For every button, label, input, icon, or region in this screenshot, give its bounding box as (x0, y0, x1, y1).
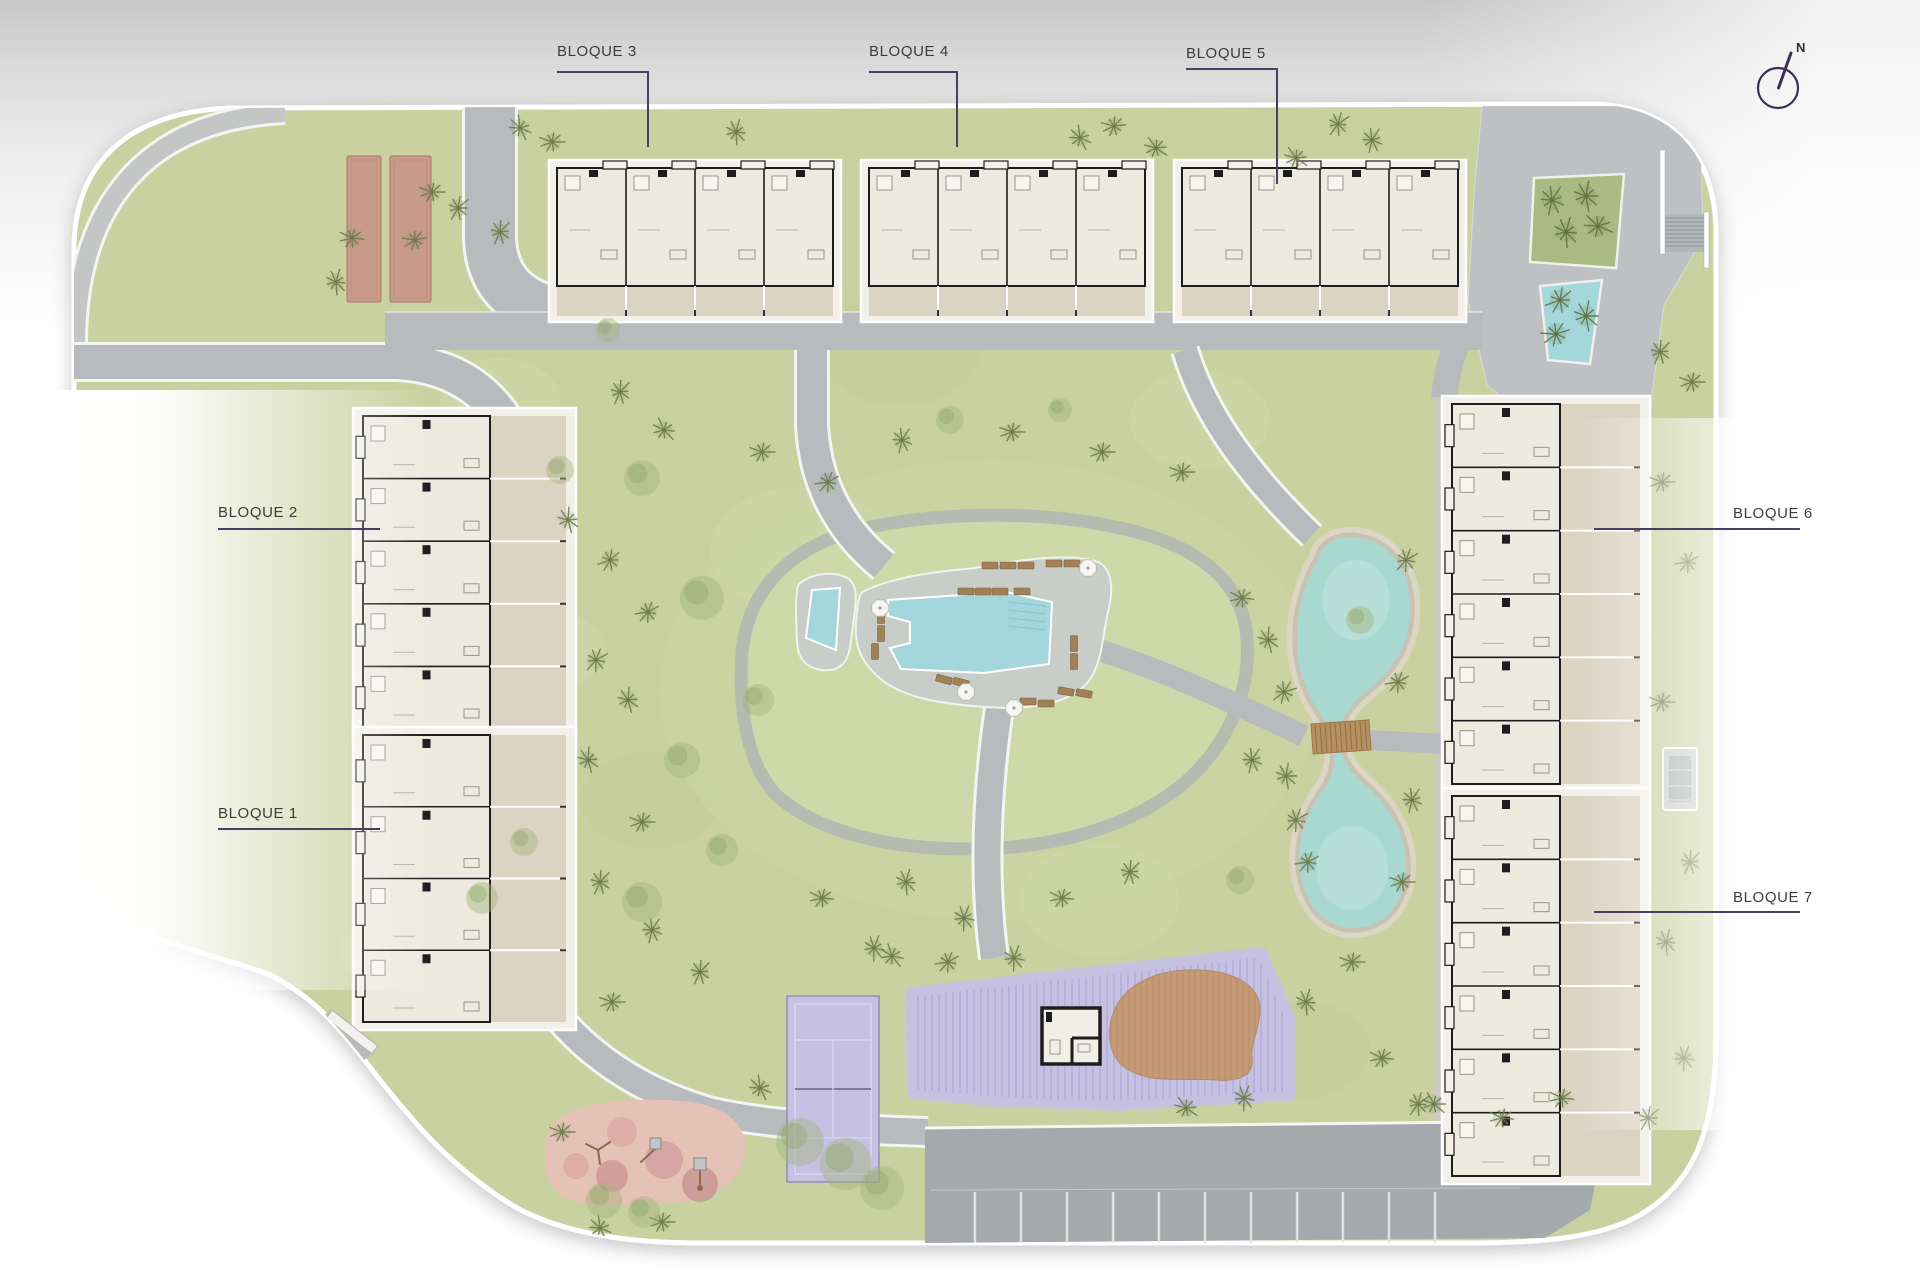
leader-line-bloque-4-drop (956, 71, 958, 147)
label-bloque-5: BLOQUE 5 (1186, 46, 1266, 63)
leader-line-bloque-7 (1594, 911, 1800, 913)
label-bloque-1: BLOQUE 1 (218, 806, 298, 823)
building-bloque-5 (1174, 160, 1466, 322)
sun-lounger (1071, 636, 1078, 652)
leader-line-bloque-5-drop (1276, 68, 1278, 184)
leader-line-bloque-4 (869, 71, 958, 73)
site-plan-canvas: BLOQUE 3 BLOQUE 4 BLOQUE 5 BLOQUE 2 BLOQ… (0, 0, 1920, 1280)
label-bloque-6: BLOQUE 6 (1733, 506, 1813, 523)
sun-lounger (975, 588, 991, 595)
compass-north-indicator: N (1744, 36, 1834, 126)
playground (545, 1100, 746, 1207)
sun-lounger (1014, 588, 1030, 595)
sun-lounger (992, 588, 1008, 595)
sun-lounger (1046, 560, 1062, 567)
sun-lounger (1038, 700, 1054, 707)
sun-lounger (1071, 654, 1078, 670)
leader-line-bloque-6 (1594, 528, 1800, 530)
building-bloque-4 (861, 160, 1153, 322)
building-bloque-3 (549, 160, 841, 322)
label-bloque-2: BLOQUE 2 (218, 505, 298, 522)
compass-n-label: N (1796, 40, 1805, 55)
sun-lounger (982, 562, 998, 569)
leader-line-bloque-5 (1186, 68, 1278, 70)
label-bloque-4: BLOQUE 4 (869, 44, 949, 61)
leader-line-bloque-3 (557, 71, 649, 73)
sun-lounger (1000, 562, 1016, 569)
label-bloque-7: BLOQUE 7 (1733, 890, 1813, 907)
site-plan-drawing (0, 0, 1920, 1280)
sun-lounger (878, 626, 885, 642)
sun-lounger (1064, 560, 1080, 567)
right-fade-overlay (1578, 418, 1920, 1130)
leader-line-bloque-1 (218, 828, 380, 830)
leader-line-bloque-3-drop (647, 71, 649, 147)
small-pool (806, 588, 840, 650)
north-arrow-icon (1744, 36, 1834, 126)
left-fade-overlay (0, 390, 430, 990)
sun-lounger (958, 588, 974, 595)
wooden-bridge (1311, 720, 1371, 754)
sun-lounger (872, 644, 879, 660)
clubhouse-building (1042, 1008, 1100, 1064)
leader-line-bloque-2 (218, 528, 380, 530)
planted-square (1530, 174, 1624, 268)
sun-lounger (1020, 698, 1036, 705)
label-bloque-3: BLOQUE 3 (557, 44, 637, 61)
sun-lounger (1018, 562, 1034, 569)
